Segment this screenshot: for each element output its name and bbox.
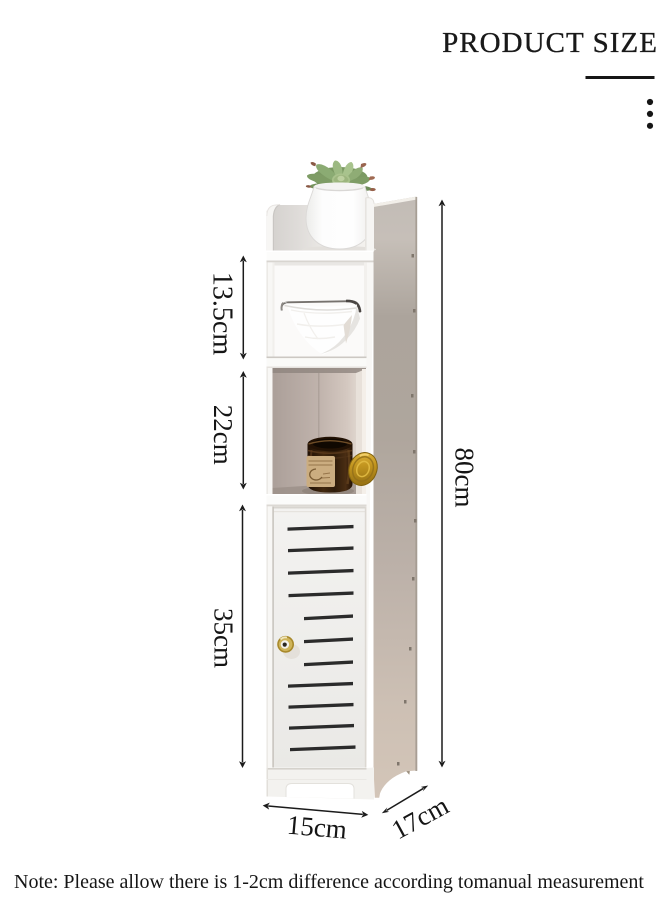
- svg-text:Note: Please allow there is 1-: Note: Please allow there is 1-2cm differ…: [14, 871, 644, 893]
- svg-text:13.5cm: 13.5cm: [207, 272, 238, 355]
- svg-text:PRODUCT SIZE: PRODUCT SIZE: [442, 27, 658, 59]
- svg-text:22cm: 22cm: [208, 405, 238, 465]
- svg-text:35cm: 35cm: [208, 608, 238, 668]
- svg-text:15cm: 15cm: [286, 810, 348, 845]
- svg-text:80cm: 80cm: [449, 448, 479, 508]
